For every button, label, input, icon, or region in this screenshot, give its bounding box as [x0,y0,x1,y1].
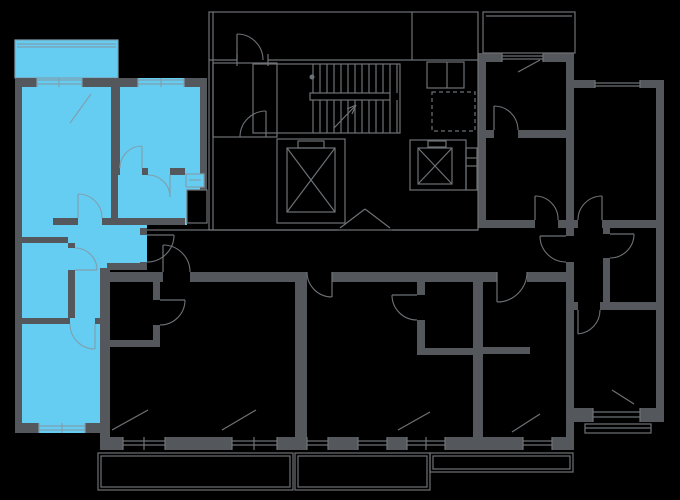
wall-10 [107,263,147,270]
wall-15 [170,168,185,175]
wall-41 [566,302,578,310]
wall-21 [68,270,75,318]
highlighted-apartment-balcony[interactable] [15,40,118,78]
wall-16 [53,218,78,225]
wall-37 [574,220,578,228]
wall-30 [478,220,535,228]
wall-8 [140,228,147,235]
wall-65 [483,437,523,450]
floorplan-stage [0,0,680,500]
wall-35 [566,228,574,236]
wall-48 [332,272,497,282]
wall-64 [445,437,473,450]
wall-4 [15,423,39,433]
wall-23 [95,318,107,324]
wall-43 [566,408,593,422]
wall-52 [153,282,160,300]
wall-42 [600,302,664,310]
wall-39 [603,228,610,234]
wall-31 [558,220,574,228]
wall-46 [100,272,163,282]
wall-60 [165,437,232,450]
wall-32 [574,80,595,88]
wall-51 [473,282,483,450]
wall-55 [417,282,425,295]
wall-38 [602,220,664,228]
wall-19 [15,237,68,243]
wall-63 [387,437,407,450]
wall-14 [142,168,148,175]
wall-59 [107,437,123,450]
wall-28 [486,130,494,138]
wall-47 [190,272,307,282]
wall-61 [277,437,295,450]
wall-18 [118,218,185,225]
wall-57 [417,348,473,355]
floor-plan-svg [0,0,680,500]
wall-66 [552,437,574,450]
wall-62 [328,437,358,450]
wall-58 [483,347,530,354]
wall-34 [656,80,664,422]
wall-36 [566,262,574,422]
wall-11 [111,87,120,168]
wall-7 [100,268,110,450]
wall-3 [15,78,22,433]
wall-2 [184,78,207,87]
wall-27 [566,60,574,228]
wall-12 [111,175,118,225]
wall-13 [111,168,120,175]
wall-29 [518,130,566,138]
shaft-box-0 [187,190,207,223]
wall-17 [102,218,118,225]
wall-26 [478,53,486,228]
wall-54 [110,340,160,347]
wall-49 [527,272,574,282]
wall-50 [295,282,307,450]
wall-44 [640,408,664,422]
wall-20 [68,243,75,248]
wall-1 [82,78,138,87]
wall-22 [15,318,70,324]
stair-start-dot-0 [310,75,315,80]
wall-40 [603,258,610,302]
